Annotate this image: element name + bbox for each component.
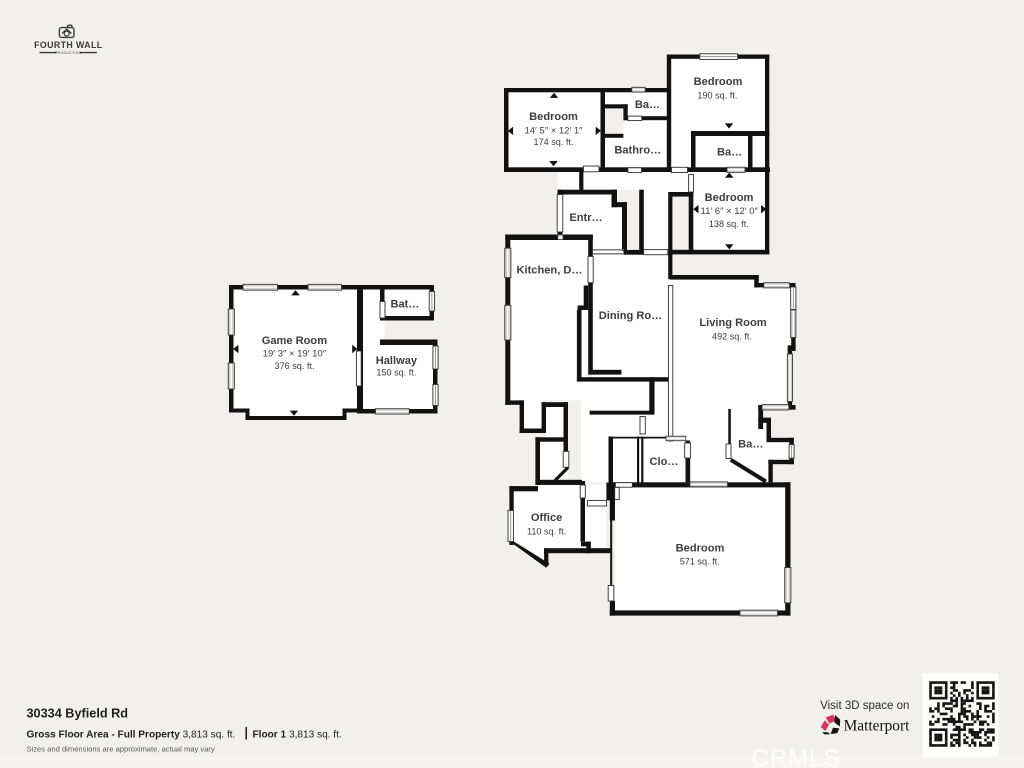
svg-text:571 sq. ft.: 571 sq. ft. — [680, 556, 720, 566]
svg-text:Sizes and dimensions are appro: Sizes and dimensions are approximate, ac… — [27, 745, 215, 754]
svg-text:11′ 6″ × 12′ 0″: 11′ 6″ × 12′ 0″ — [701, 206, 759, 217]
svg-text:Living Room: Living Room — [699, 317, 766, 329]
svg-text:150 sq. ft.: 150 sq. ft. — [376, 368, 416, 378]
svg-text:Floor 1 3,813 sq. ft.: Floor 1 3,813 sq. ft. — [253, 729, 342, 740]
svg-text:FOURTH WALL: FOURTH WALL — [34, 40, 103, 50]
svg-text:138 sq. ft.: 138 sq. ft. — [709, 219, 749, 229]
svg-text:Kitchen, D…: Kitchen, D… — [517, 265, 583, 277]
svg-text:Game Room: Game Room — [262, 335, 327, 347]
svg-text:Bathro…: Bathro… — [614, 145, 661, 157]
svg-text:Clo…: Clo… — [650, 456, 679, 468]
svg-text:Entr…: Entr… — [569, 212, 602, 224]
svg-text:Bedroom: Bedroom — [694, 76, 743, 88]
svg-text:CRMLS: CRMLS — [751, 745, 840, 768]
svg-text:Bedroom: Bedroom — [705, 192, 754, 204]
svg-text:Ba…: Ba… — [635, 99, 660, 111]
svg-text:PRODUCTION: PRODUCTION — [55, 51, 82, 55]
svg-text:110 sq. ft.: 110 sq. ft. — [527, 526, 566, 536]
svg-text:190 sq. ft.: 190 sq. ft. — [697, 90, 737, 100]
svg-text:14′ 5″ × 12′ 1″: 14′ 5″ × 12′ 1″ — [524, 126, 583, 137]
svg-text:174 sq. ft.: 174 sq. ft. — [534, 137, 574, 147]
svg-text:492 sq. ft.: 492 sq. ft. — [712, 332, 752, 342]
svg-text:30334 Byfield Rd: 30334 Byfield Rd — [27, 707, 129, 721]
svg-text:Bedroom: Bedroom — [676, 542, 725, 554]
svg-text:Visit 3D space on: Visit 3D space on — [820, 700, 909, 712]
svg-text:Bat…: Bat… — [391, 299, 420, 311]
svg-text:Hallway: Hallway — [376, 355, 418, 367]
svg-text:376 sq. ft.: 376 sq. ft. — [275, 361, 315, 371]
svg-text:Bedroom: Bedroom — [529, 111, 578, 123]
svg-text:19′ 3″ × 19′ 10″: 19′ 3″ × 19′ 10″ — [263, 349, 327, 360]
svg-text:Ba…: Ba… — [717, 146, 742, 158]
svg-text:Ba…: Ba… — [738, 439, 763, 451]
svg-text:Gross Floor Area - Full Proper: Gross Floor Area - Full Property 3,813 s… — [27, 729, 236, 740]
svg-text:Matterport: Matterport — [844, 717, 911, 734]
svg-text:Dining Ro…: Dining Ro… — [599, 310, 662, 322]
svg-text:Office: Office — [531, 512, 562, 524]
